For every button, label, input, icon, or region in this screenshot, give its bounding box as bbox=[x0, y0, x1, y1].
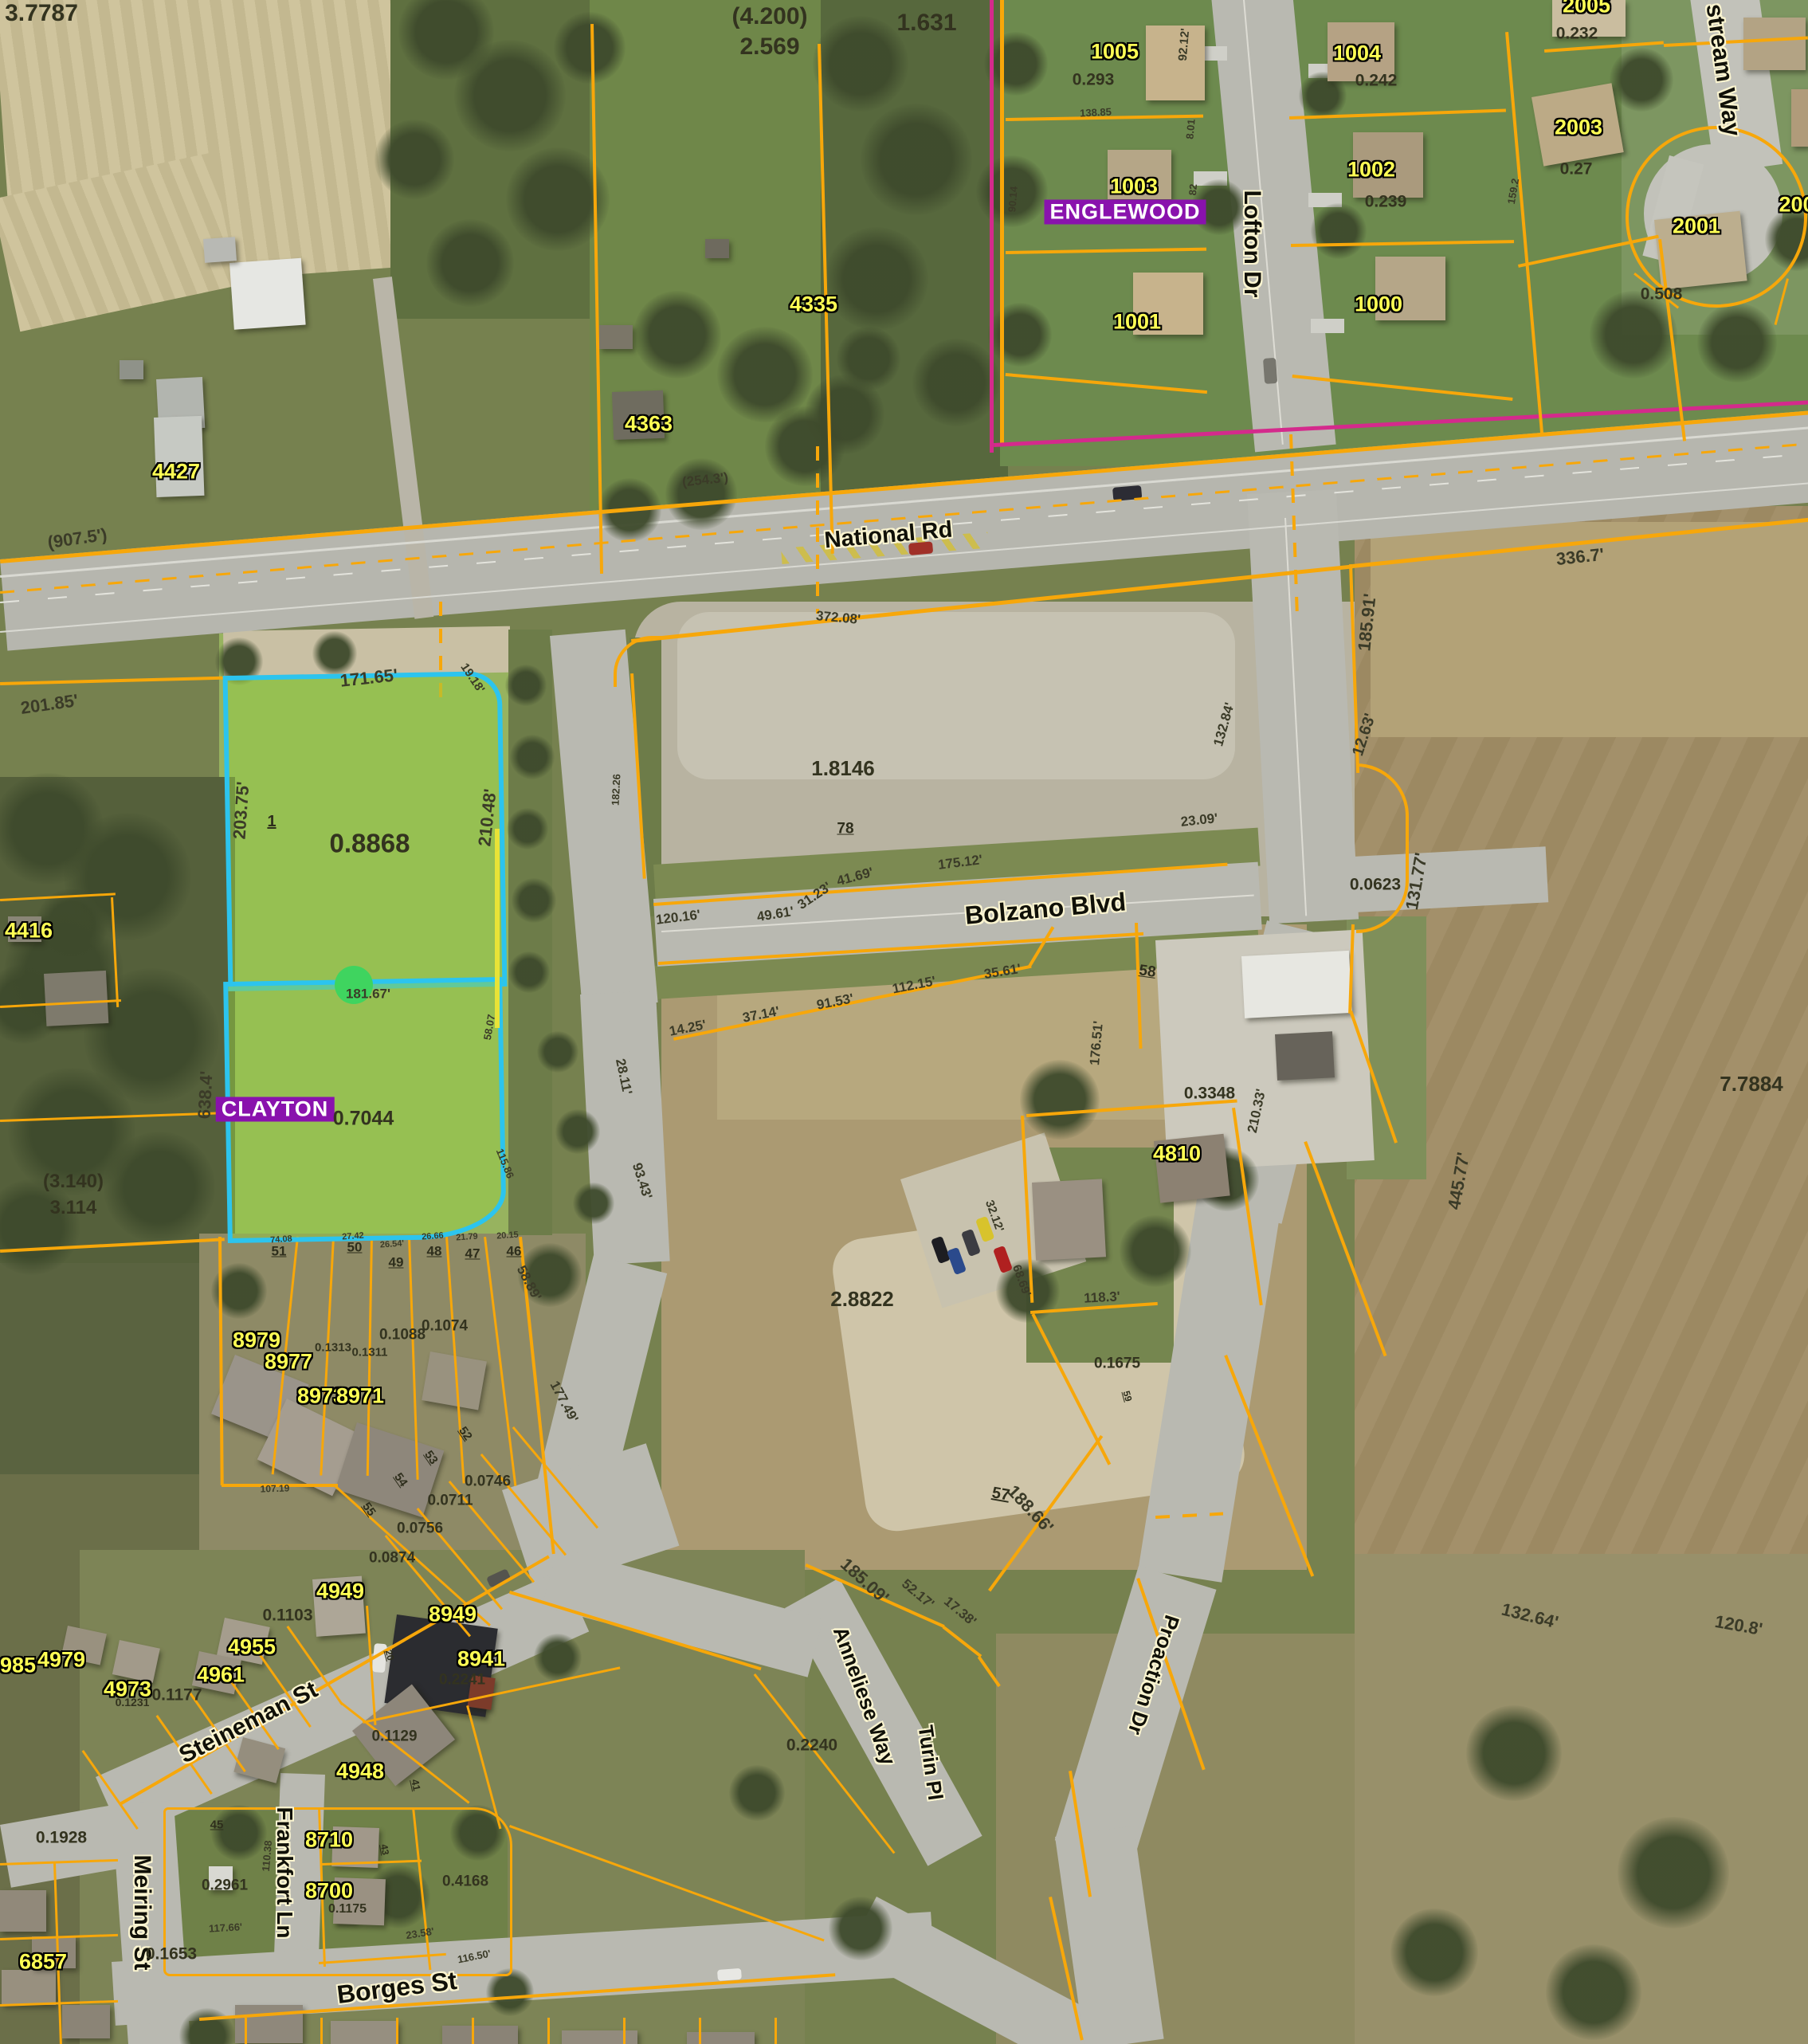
parcel-id-label[interactable]: 4949 bbox=[316, 1581, 364, 1603]
acreage-label: 0.1675 bbox=[1094, 1356, 1140, 1371]
parcel-id-label[interactable]: 8941 bbox=[457, 1649, 505, 1670]
acreage-label: 0.8868 bbox=[330, 830, 410, 857]
dimension-label: 21.79 bbox=[456, 1233, 478, 1243]
acreage-label: 0.1653 bbox=[146, 1946, 197, 1963]
dimension-label: 82 bbox=[1187, 183, 1198, 196]
tree-canopy bbox=[426, 219, 514, 307]
boundary-line bbox=[547, 2018, 550, 2044]
building bbox=[1791, 89, 1808, 147]
building bbox=[687, 2032, 755, 2044]
building bbox=[331, 2021, 398, 2044]
parcel-id-label[interactable]: 2005 bbox=[1563, 0, 1610, 17]
tree-canopy bbox=[1618, 1817, 1729, 1928]
lot-number-label: 51 bbox=[272, 1245, 287, 1258]
boundary-line bbox=[943, 1626, 982, 1658]
parcel-id-label[interactable]: 2001 bbox=[1673, 216, 1720, 237]
tree-canopy bbox=[507, 808, 548, 849]
tree-canopy bbox=[813, 16, 908, 112]
tree-canopy bbox=[510, 735, 555, 779]
acreage-label: 0.1088 bbox=[379, 1328, 426, 1343]
dimension-label: 92.12' bbox=[1177, 28, 1192, 61]
tree-canopy bbox=[825, 227, 928, 331]
acreage-label: 3.114 bbox=[50, 1199, 97, 1218]
tree-canopy bbox=[104, 1132, 215, 1243]
dimension-label: 107.19 bbox=[260, 1483, 289, 1493]
building bbox=[599, 325, 633, 349]
tree-canopy bbox=[829, 1897, 892, 1960]
dimension-label: 20.15 bbox=[496, 1231, 519, 1242]
dimension-label: (907.5') bbox=[46, 526, 108, 551]
building bbox=[705, 239, 729, 258]
acreage-label: 0.0756 bbox=[397, 1521, 443, 1536]
dimension-label: 176.51' bbox=[1088, 1020, 1105, 1065]
acreage-label: 0.7044 bbox=[333, 1109, 394, 1129]
building bbox=[203, 237, 237, 263]
building bbox=[442, 2026, 518, 2044]
parcel-id-label[interactable]: 8700 bbox=[305, 1881, 353, 1902]
parcel-id-label[interactable]: 8710 bbox=[305, 1830, 353, 1851]
acreage-label: 0.1231 bbox=[116, 1697, 150, 1708]
tree-canopy bbox=[1311, 203, 1367, 259]
gis-map-canvas[interactable]: ENGLEWOODCLAYTONNational RdLofton Drstre… bbox=[0, 0, 1808, 2044]
lot-number-label: 46 bbox=[507, 1245, 522, 1258]
tree-canopy bbox=[537, 1031, 578, 1073]
lot-number-label: 49 bbox=[389, 1256, 404, 1269]
boundary-line bbox=[0, 676, 229, 685]
parcel-id-label[interactable]: 200 bbox=[1779, 194, 1808, 216]
tree-canopy bbox=[984, 32, 1048, 96]
tree-canopy bbox=[988, 303, 1052, 367]
building bbox=[62, 2005, 110, 2038]
boundary-line bbox=[775, 2018, 777, 2044]
building bbox=[44, 971, 108, 1026]
parcel-id-label[interactable]: 4810 bbox=[1153, 1144, 1201, 1165]
parcel-id-label[interactable]: 1004 bbox=[1333, 43, 1381, 65]
lot-number-label: 78 bbox=[837, 822, 853, 837]
parcel-id-label[interactable]: 4961 bbox=[197, 1665, 245, 1686]
parcel-id-label[interactable]: 1001 bbox=[1113, 312, 1161, 333]
boundary-line bbox=[396, 2018, 398, 2044]
acreage-label: 0.293 bbox=[1073, 72, 1115, 88]
acreage-label: 0.232 bbox=[1556, 26, 1598, 42]
vehicle bbox=[1263, 358, 1277, 384]
parcel-id-label[interactable]: 6857 bbox=[19, 1952, 67, 1973]
tree-canopy bbox=[512, 878, 556, 923]
boundary-line bbox=[320, 2018, 323, 2044]
cleared-lot-light bbox=[677, 612, 1235, 779]
parcel-id-label[interactable]: 4979 bbox=[37, 1650, 85, 1671]
acreage-label: 2.8822 bbox=[830, 1289, 894, 1309]
dimension-label: 117.66' bbox=[209, 1921, 243, 1933]
parcel-id-label[interactable]: 4948 bbox=[336, 1761, 384, 1783]
building bbox=[120, 360, 143, 379]
street-label[interactable]: Frankfort Ln bbox=[273, 1807, 296, 1939]
parcel-id-label[interactable]: 8977 bbox=[265, 1352, 312, 1373]
tree-canopy bbox=[454, 40, 566, 151]
tree-canopy bbox=[534, 1634, 582, 1681]
shared-lot-line bbox=[495, 829, 500, 1028]
acreage-label: 7.7884 bbox=[1720, 1073, 1783, 1094]
dimension-label: 638.4' bbox=[195, 1070, 215, 1119]
building bbox=[1032, 1179, 1106, 1260]
building bbox=[1743, 18, 1806, 70]
woods-dark bbox=[0, 1239, 227, 1486]
boundary-line bbox=[990, 0, 994, 453]
acreage-label: 0.1311 bbox=[351, 1347, 387, 1359]
tree-canopy bbox=[633, 291, 721, 379]
tree-canopy bbox=[1466, 1705, 1562, 1801]
tree-canopy bbox=[1697, 303, 1777, 383]
lot-number-label: 48 bbox=[427, 1245, 442, 1258]
parcel-id-label[interactable]: 4985 bbox=[0, 1655, 36, 1677]
city-label: ENGLEWOOD bbox=[1045, 200, 1206, 225]
boundary-line bbox=[816, 446, 819, 614]
acreage-label: 0.27 bbox=[1560, 161, 1593, 178]
dimension-label: 110.38 bbox=[261, 1840, 273, 1872]
acreage-label: 0.1103 bbox=[262, 1607, 312, 1624]
acreage-label: 0.0623 bbox=[1350, 877, 1401, 893]
building bbox=[562, 2030, 637, 2044]
tree-canopy bbox=[837, 327, 900, 390]
acreage-label: 0.1129 bbox=[371, 1729, 417, 1744]
parcel-id-label[interactable]: 1005 bbox=[1091, 41, 1139, 63]
building bbox=[1275, 1031, 1335, 1081]
tree-canopy bbox=[665, 458, 737, 530]
boundary-line bbox=[245, 2018, 247, 2044]
tree-canopy bbox=[573, 1183, 614, 1224]
dimension-label: 181.67' bbox=[346, 987, 390, 1001]
dimension-label: 17.38' bbox=[942, 1595, 979, 1629]
lot-number-label: 57 bbox=[990, 1485, 1010, 1504]
acreage-label: 0.242 bbox=[1355, 73, 1398, 89]
dimension-label: 23.09' bbox=[1180, 811, 1218, 829]
building bbox=[0, 1890, 46, 1932]
dimension-label: 52.17' bbox=[900, 1577, 937, 1611]
building bbox=[229, 258, 306, 330]
tree-canopy bbox=[1590, 291, 1677, 379]
tree-canopy bbox=[1390, 1909, 1478, 1996]
street-label[interactable]: Lofton Dr bbox=[1240, 190, 1264, 298]
lot-number-label: 58 bbox=[1138, 963, 1157, 980]
tree-canopy bbox=[729, 1765, 785, 1821]
tree-canopy bbox=[555, 1109, 600, 1154]
lot-number-label: 1 bbox=[267, 814, 276, 830]
acreage-label: 1.8146 bbox=[811, 758, 875, 779]
driveway bbox=[1311, 319, 1344, 333]
building bbox=[2, 1970, 56, 2005]
parcel-id-label[interactable]: 4427 bbox=[152, 461, 200, 483]
tree-canopy bbox=[375, 120, 454, 199]
dimension-label: 138.85 bbox=[1080, 106, 1112, 118]
dimension-label: 201.85' bbox=[20, 692, 80, 717]
dimension-label: 26.66 bbox=[422, 1232, 444, 1242]
verge bbox=[508, 630, 552, 1235]
dimension-label: 90.14 bbox=[1006, 186, 1019, 213]
lot-number-label: 43 bbox=[379, 1843, 390, 1855]
parcel-id-label[interactable]: 1000 bbox=[1355, 294, 1402, 316]
parcel-id-label[interactable]: 4416 bbox=[5, 920, 53, 942]
acreage-label: (4.200) bbox=[731, 5, 807, 29]
boundary-line bbox=[623, 2018, 626, 2044]
boundary-line bbox=[1000, 0, 1004, 445]
building bbox=[1241, 951, 1352, 1018]
lot-number-label: 41 bbox=[410, 1779, 422, 1792]
dimension-label: 182.26 bbox=[610, 774, 622, 806]
building bbox=[154, 416, 204, 497]
dimension-label: 372.08' bbox=[815, 609, 861, 626]
acreage-label: 0.1177 bbox=[151, 1687, 202, 1704]
parcel-id-label[interactable]: 8971 bbox=[336, 1386, 384, 1407]
acreage-label: 0.508 bbox=[1641, 286, 1683, 303]
acreage-label: 2.569 bbox=[739, 35, 799, 59]
vehicle bbox=[717, 1968, 742, 1981]
acreage-label: (3.140) bbox=[43, 1172, 104, 1191]
parcel-id-label[interactable]: 4335 bbox=[790, 294, 837, 316]
parcel-id-label[interactable]: 2003 bbox=[1555, 117, 1602, 139]
building bbox=[1146, 26, 1205, 100]
parcel-id-label[interactable]: 1003 bbox=[1110, 176, 1158, 198]
lot-number-label: 50 bbox=[347, 1241, 363, 1254]
tree-canopy bbox=[505, 665, 547, 706]
city-label: CLAYTON bbox=[216, 1097, 335, 1122]
tree-canopy bbox=[861, 104, 972, 215]
boundary-line bbox=[472, 2018, 474, 2044]
parcel-id-label[interactable]: 8979 bbox=[233, 1330, 280, 1352]
acreage-label: 0.2240 bbox=[786, 1737, 837, 1754]
tree-canopy bbox=[912, 339, 1000, 426]
parcel-id-label[interactable]: 4363 bbox=[625, 414, 673, 435]
acreage-label: 3.7787 bbox=[5, 2, 78, 26]
tree-canopy bbox=[508, 951, 550, 993]
acreage-label: 0.4168 bbox=[442, 1874, 488, 1889]
acreage-label: 0.239 bbox=[1365, 194, 1407, 210]
tree-canopy bbox=[1120, 1215, 1191, 1287]
acreage-label: 0.0711 bbox=[427, 1493, 473, 1508]
tree-canopy bbox=[1610, 48, 1673, 112]
acreage-label: 0.1175 bbox=[328, 1903, 367, 1916]
dimension-label: 8.01 bbox=[1184, 119, 1196, 139]
dimension-label: 118.3' bbox=[1084, 1289, 1120, 1304]
acreage-label: 0.1928 bbox=[36, 1830, 87, 1846]
tree-canopy bbox=[1546, 1944, 1641, 2040]
acreage-label: 0.1313 bbox=[315, 1342, 351, 1354]
parcel-id-label[interactable]: 4955 bbox=[228, 1637, 276, 1658]
acreage-label: 0.0746 bbox=[465, 1474, 511, 1489]
lot-number-label: 47 bbox=[465, 1247, 480, 1261]
acreage-label: 0.0874 bbox=[369, 1551, 415, 1566]
acreage-label: 0.3348 bbox=[1184, 1085, 1235, 1102]
parcel-id-label[interactable]: 1002 bbox=[1347, 159, 1395, 181]
acreage-label: 0.2961 bbox=[202, 1878, 248, 1893]
tree-canopy bbox=[765, 406, 845, 486]
dimension-label: 26.54' bbox=[380, 1239, 405, 1250]
boundary-line bbox=[699, 2018, 701, 2044]
acreage-label: 0.2241 bbox=[439, 1673, 485, 1688]
tree-canopy bbox=[1020, 1060, 1100, 1140]
lot-number-label: 45 bbox=[210, 1819, 224, 1831]
acreage-label: 1.631 bbox=[896, 11, 956, 35]
acreage-label: 0.1074 bbox=[422, 1319, 468, 1334]
dimension-label: 203.75' bbox=[230, 781, 252, 840]
parcel-id-label[interactable]: 8949 bbox=[429, 1604, 477, 1626]
tree-canopy bbox=[554, 12, 626, 84]
